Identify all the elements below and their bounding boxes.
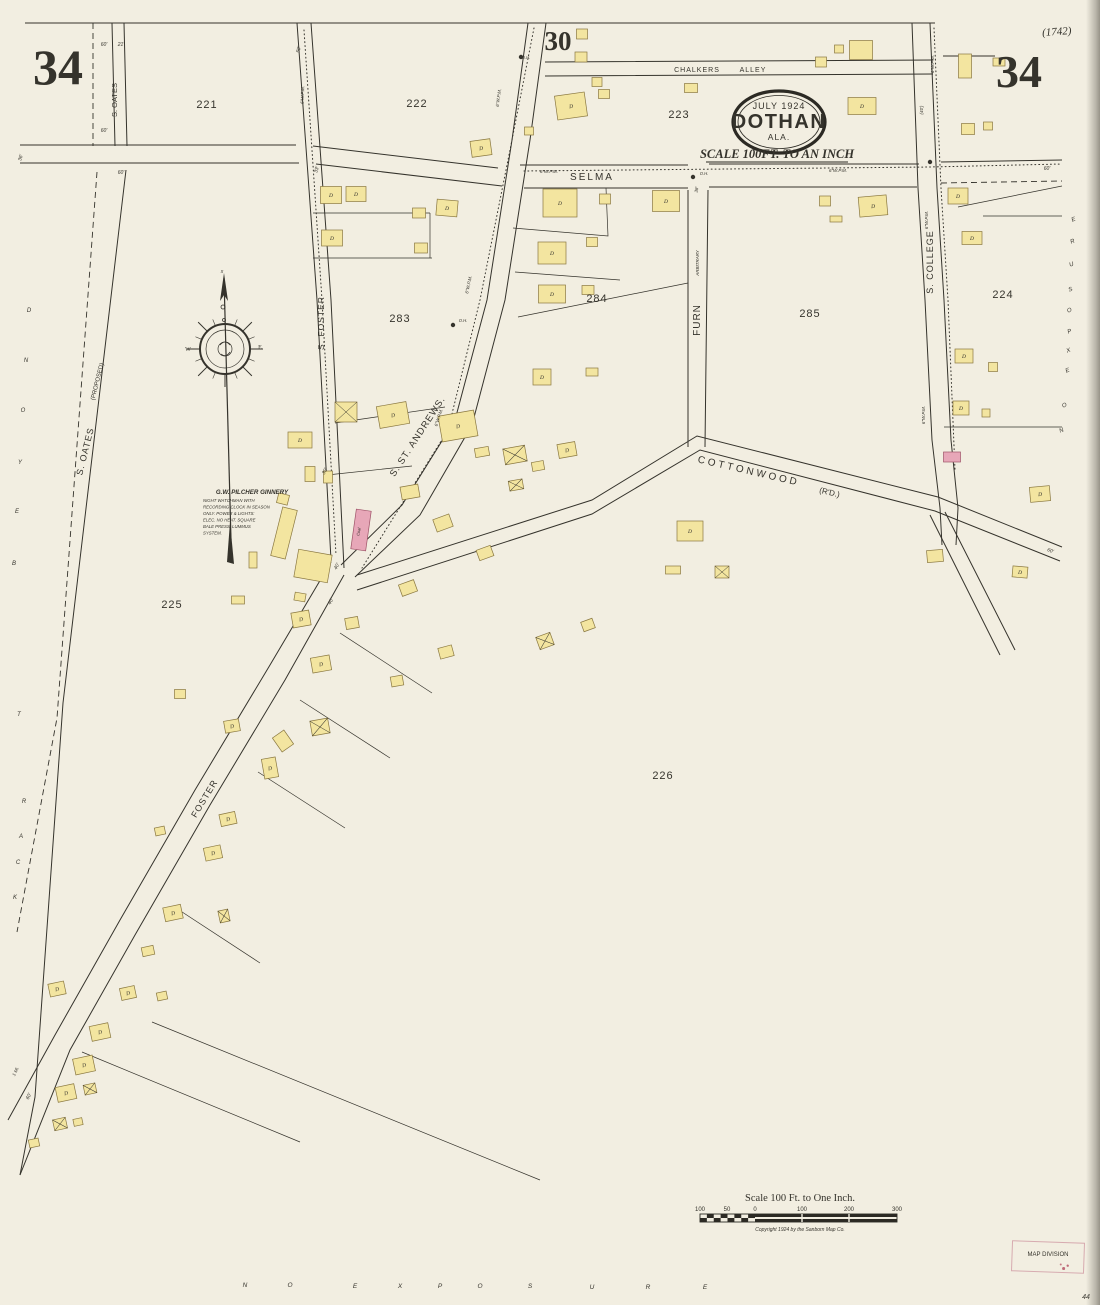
dashed-boundary-lines (17, 23, 1062, 932)
plate-number: (1742) (1042, 25, 1072, 39)
building-frame (575, 52, 587, 62)
building-frame (156, 991, 167, 1001)
building-frame (271, 507, 298, 559)
map-canvas: DDDDDDDDDDDDDDDDDDDDDDDDDDDDDDDDDDDD 343… (0, 0, 1100, 1305)
margin-no-exposure-right: E (1065, 367, 1072, 374)
building-use-letter: D (549, 292, 554, 298)
building-frame: D (224, 719, 241, 733)
overhead-light-label: O.H. (522, 55, 531, 60)
margin-no-exposure-right: X (1065, 347, 1073, 355)
building-frame: D (1012, 566, 1028, 578)
street-selma: SELMA (570, 172, 614, 183)
ginnery-note: BALE PRESS. LUMMUS (203, 524, 251, 529)
street-s-oates: S. OATES (110, 83, 119, 117)
block-number-225: 225 (161, 599, 182, 611)
building-frame: D (163, 904, 184, 921)
margin-no-exposure-bottom: R (646, 1284, 651, 1291)
margin-letter-left: O (21, 408, 26, 414)
margin-letter-left: C (16, 860, 21, 866)
building-frame: D (848, 98, 876, 115)
street-cottonwood-road: (R'D.) (818, 486, 840, 499)
building-frame (989, 363, 998, 372)
scalebar-tick: 200 (844, 1207, 855, 1213)
scalebar-caption: Scale 100 Ft. to One Inch. (745, 1193, 855, 1204)
dimension-label: (40') (919, 105, 924, 114)
building-use-letter: D (961, 354, 966, 360)
margin-no-exposure-bottom: S (528, 1283, 533, 1290)
building-frame (476, 545, 494, 560)
building-frame: D (948, 188, 968, 204)
compass-west-label: W (185, 347, 191, 353)
sheet-number-left: 34 (33, 39, 83, 95)
building-use-letter: D (455, 424, 461, 431)
margin-no-exposure-right: O (1066, 307, 1073, 314)
building-frame: D (291, 610, 311, 628)
margin-no-exposure-bottom: O (477, 1283, 482, 1290)
building-frame: D (953, 401, 969, 415)
water-main-label: 6"W.P.M. (464, 275, 473, 294)
building-frame (685, 84, 698, 93)
scalebar-tick: 50 (724, 1207, 731, 1213)
dimension-label: 60' (1044, 166, 1052, 172)
margin-no-exposure-bottom: E (353, 1283, 358, 1290)
building-frame: D (962, 232, 982, 245)
building-frame: D (48, 981, 66, 997)
water-main-label: 6"W.P.M. (921, 406, 926, 424)
building-frame: D (321, 187, 342, 204)
ginnery-note: NIGHT WATCHMAN WITH (203, 498, 256, 503)
building-frame (438, 645, 454, 659)
building-frame (141, 945, 155, 956)
building-frame (175, 690, 186, 699)
water-main-label: 6"W.P.M. (924, 211, 929, 229)
dimension-label: 60' (25, 1091, 34, 1100)
building-frame: D (543, 189, 577, 217)
adjacent-sheet-number: 30 (545, 26, 572, 56)
building-frame (474, 446, 489, 457)
ginnery-note: ELEC. NO HEAT. SQUARE (203, 518, 256, 523)
building-use-letter: D (568, 104, 574, 111)
scalebar-tick: 300 (892, 1207, 903, 1213)
building-frame (305, 467, 315, 482)
building-frame (52, 1117, 67, 1130)
water-main-label: 6"W.P.M. (930, 55, 935, 73)
scalebar-tick: 100 (797, 1207, 808, 1213)
building-frame (835, 45, 844, 53)
lot-lines (82, 186, 1062, 1180)
building-use-letter: D (444, 206, 450, 212)
building-frame (600, 194, 611, 204)
building-frame: D (858, 195, 888, 217)
building-frame (232, 596, 245, 604)
building-frame: D (557, 442, 577, 459)
building-frame (508, 479, 524, 491)
building-frame: D (554, 92, 587, 120)
street-s-oates-proposed: (PROPOSED) (91, 363, 106, 401)
building-frame (586, 368, 598, 376)
building-frame (587, 238, 598, 247)
building-frame (28, 1138, 39, 1148)
overhead-light-dots (451, 55, 932, 327)
building-frame (959, 54, 972, 78)
building-frame: D (1029, 486, 1050, 503)
building-frame: D (470, 139, 492, 158)
scalebar-tick: 0 (753, 1207, 757, 1213)
building-frame (581, 618, 596, 632)
scalebar-tick: 100 (695, 1207, 706, 1213)
block-number-221: 221 (196, 99, 217, 111)
building-frame (335, 402, 357, 422)
ginnery-title: G.W. PILCHER GINNERY (216, 489, 289, 496)
margin-letter-left: E (15, 509, 20, 515)
building-frame: D (203, 845, 222, 861)
building-use-letter: D (955, 194, 960, 200)
building-frame (927, 549, 944, 562)
margin-letter-left: Y (18, 460, 23, 466)
building-use-letter: D (958, 406, 963, 412)
buildings-layer: DDDDDDDDDDDDDDDDDDDDDDDDDDDDDDDDDDDD (28, 29, 1050, 1148)
building-use-letter: D (663, 199, 668, 205)
compass-north-mark: x (220, 269, 224, 275)
overhead-light-label: O.H. (459, 318, 468, 323)
building-use-letter: D (298, 617, 304, 624)
dimension-label: 60' (101, 128, 109, 134)
building-use-letter: D (1017, 570, 1023, 576)
building-frame (390, 675, 404, 687)
building-frame: D (653, 191, 680, 212)
title-state: ALA. (768, 132, 790, 142)
building-frame (666, 566, 681, 574)
building-frame: D (533, 369, 551, 385)
block-number-222: 222 (406, 98, 427, 110)
building-frame (715, 566, 729, 578)
building-use-letter: D (328, 193, 333, 199)
building-use-letter: D (329, 236, 334, 242)
building-frame (982, 409, 990, 417)
building-frame (984, 122, 993, 130)
margin-distance-note: 1 Mi. (11, 1066, 20, 1077)
building-frame (249, 552, 257, 568)
building-frame: D (436, 199, 458, 217)
margin-letter-left: T (17, 712, 22, 718)
margin-no-exposure-right: P (1067, 329, 1073, 336)
block-number-283: 283 (389, 313, 410, 325)
building-use-letter: D (267, 766, 273, 773)
building-frame (398, 580, 417, 597)
building-use-letter: D (564, 448, 570, 455)
margin-letter-left: K (13, 895, 18, 901)
building-frame: D (89, 1023, 111, 1042)
building-frame: D (55, 1084, 77, 1103)
scan-edge-shadow (1086, 0, 1100, 1305)
margin-letter-left: B (12, 561, 16, 567)
title-date: JULY 1924 (753, 101, 806, 111)
building-frame: D (955, 349, 973, 363)
margin-no-exposure-right: U (1069, 261, 1076, 268)
building-frame: D (539, 285, 566, 303)
building-frame (154, 826, 165, 836)
block-number-285: 285 (799, 308, 820, 320)
margin-no-exposure-right: R (1070, 238, 1077, 245)
margin-no-exposure-bottom: O (287, 1282, 292, 1289)
title-scale-note: SCALE 100FT. TO AN INCH (700, 147, 855, 161)
sheet-number-right: 34 (996, 46, 1042, 97)
street-s-college: S. COLLEGE (925, 230, 935, 294)
building-use-letter: D (549, 251, 554, 257)
building-frame (525, 127, 534, 135)
building-frame (850, 41, 873, 60)
margin-no-exposure-bottom: U (590, 1284, 595, 1291)
building-use-letter: D (859, 104, 864, 110)
building-frame (73, 1118, 83, 1127)
overhead-light-label: O.H. (700, 171, 709, 176)
building-frame: D (677, 521, 703, 541)
building-frame (503, 445, 527, 465)
building-frame (413, 208, 426, 218)
building-frame: D (346, 187, 366, 202)
building-frame (599, 90, 610, 99)
ginnery-note: RECORDING CLOCK IN SEASON (203, 505, 271, 510)
building-frame (310, 718, 330, 736)
street-foster: FOSTER (189, 778, 219, 820)
building-use-letter: D (390, 413, 396, 420)
building-frame: D (310, 655, 331, 673)
street-chalkers-alley: CHALKERS (674, 67, 720, 74)
building-use-letter: D (557, 201, 562, 207)
water-main-label: 6"W.P.M. (829, 168, 847, 173)
water-main-label: 6"W.P.M. (540, 169, 558, 174)
building-frame: D (119, 986, 136, 1001)
building-use-letter: D (969, 236, 974, 242)
margin-letter-left: A (18, 834, 23, 840)
building-use-letter: D (1037, 492, 1043, 498)
building-frame (592, 78, 602, 87)
scale-bar (700, 1214, 897, 1222)
building-frame (294, 592, 306, 602)
building-frame (433, 514, 453, 532)
dimension-label: 60' (1046, 547, 1055, 555)
margin-no-exposure-bottom: X (397, 1283, 403, 1290)
dimension-label: 36' (17, 153, 25, 162)
compass-east-label: E (258, 345, 262, 351)
dimension-label: 60' (101, 42, 109, 48)
block-number-284: 284 (586, 293, 607, 305)
building-frame: D (438, 410, 478, 442)
dimension-label: 21' (117, 42, 126, 48)
building-frame: D (288, 432, 312, 448)
building-frame (816, 57, 827, 67)
building-frame (415, 243, 428, 253)
building-frame (218, 909, 230, 923)
building-frame (272, 730, 293, 752)
building-frame (400, 484, 420, 500)
building-frame: D (538, 242, 566, 264)
dimension-label: 33' (313, 165, 321, 174)
building-frame: D (261, 757, 278, 779)
building-frame (962, 124, 975, 135)
title-city: DOTHAN (732, 111, 827, 133)
water-main-label: 6"W.P.M. (495, 88, 502, 107)
building-frame: D (219, 811, 237, 826)
margin-no-exposure-right: O (1061, 402, 1068, 409)
building-use-letter: D (478, 146, 484, 153)
building-frame (345, 616, 360, 629)
street-furn-note: ARBITRARY (695, 249, 700, 277)
margin-no-exposure-bottom: P (438, 1283, 443, 1290)
block-number-226: 226 (652, 770, 673, 782)
building-frame (830, 216, 842, 222)
margin-no-exposure-right: N (1059, 427, 1066, 434)
building-frame: D (376, 402, 409, 429)
building-frame (820, 196, 831, 206)
dimension-label: 40' (333, 561, 342, 571)
street-s-foster: S. FOSTER (316, 296, 326, 350)
margin-no-exposure-right: E (1071, 216, 1078, 223)
block-number-223: 223 (668, 109, 689, 121)
building-use-letter: D (318, 662, 324, 669)
building-brick (944, 452, 961, 462)
building-use-letter: D (870, 204, 876, 210)
building-use-letter: D (539, 375, 544, 381)
dimension-label: 60' (118, 170, 126, 176)
building-frame (536, 632, 555, 649)
margin-no-exposure-right: S (1068, 287, 1074, 294)
margin-no-exposure-bottom: N (243, 1282, 248, 1289)
sanborn-map-sheet: DDDDDDDDDDDDDDDDDDDDDDDDDDDDDDDDDDDD 343… (0, 0, 1100, 1305)
water-main-label: 6"W.P.M. (300, 86, 306, 104)
margin-letter-left: N (24, 358, 29, 364)
margin-letter-left: D (27, 308, 32, 314)
building-frame (83, 1083, 97, 1095)
building-frame (577, 29, 588, 39)
ginnery-note: SYSTEM. (203, 531, 222, 536)
street-chalkers-alley: ALLEY (740, 67, 767, 74)
building-frame: D (73, 1055, 96, 1075)
margin-no-exposure-bottom: E (703, 1284, 708, 1291)
library-stamp-text: MAP DIVISION (1028, 1252, 1069, 1258)
building-use-letter: D (229, 724, 235, 731)
block-number-224: 224 (992, 289, 1013, 301)
building-use-letter: D (297, 438, 302, 444)
building-frame: D (322, 230, 343, 246)
building-frame (531, 461, 544, 472)
street-furn: FURN (692, 304, 703, 336)
building-use-letter: D (687, 529, 692, 535)
building-use-letter: D (353, 192, 358, 198)
copyright-note: Copyright 1924 by the Sanborn Map Co. (755, 1227, 845, 1233)
margin-letter-left: R (22, 799, 27, 805)
building-frame (294, 549, 332, 582)
dimension-label: 38' (694, 186, 700, 193)
ginnery-note: ONLY. POWER & LIGHTS: (203, 511, 255, 516)
